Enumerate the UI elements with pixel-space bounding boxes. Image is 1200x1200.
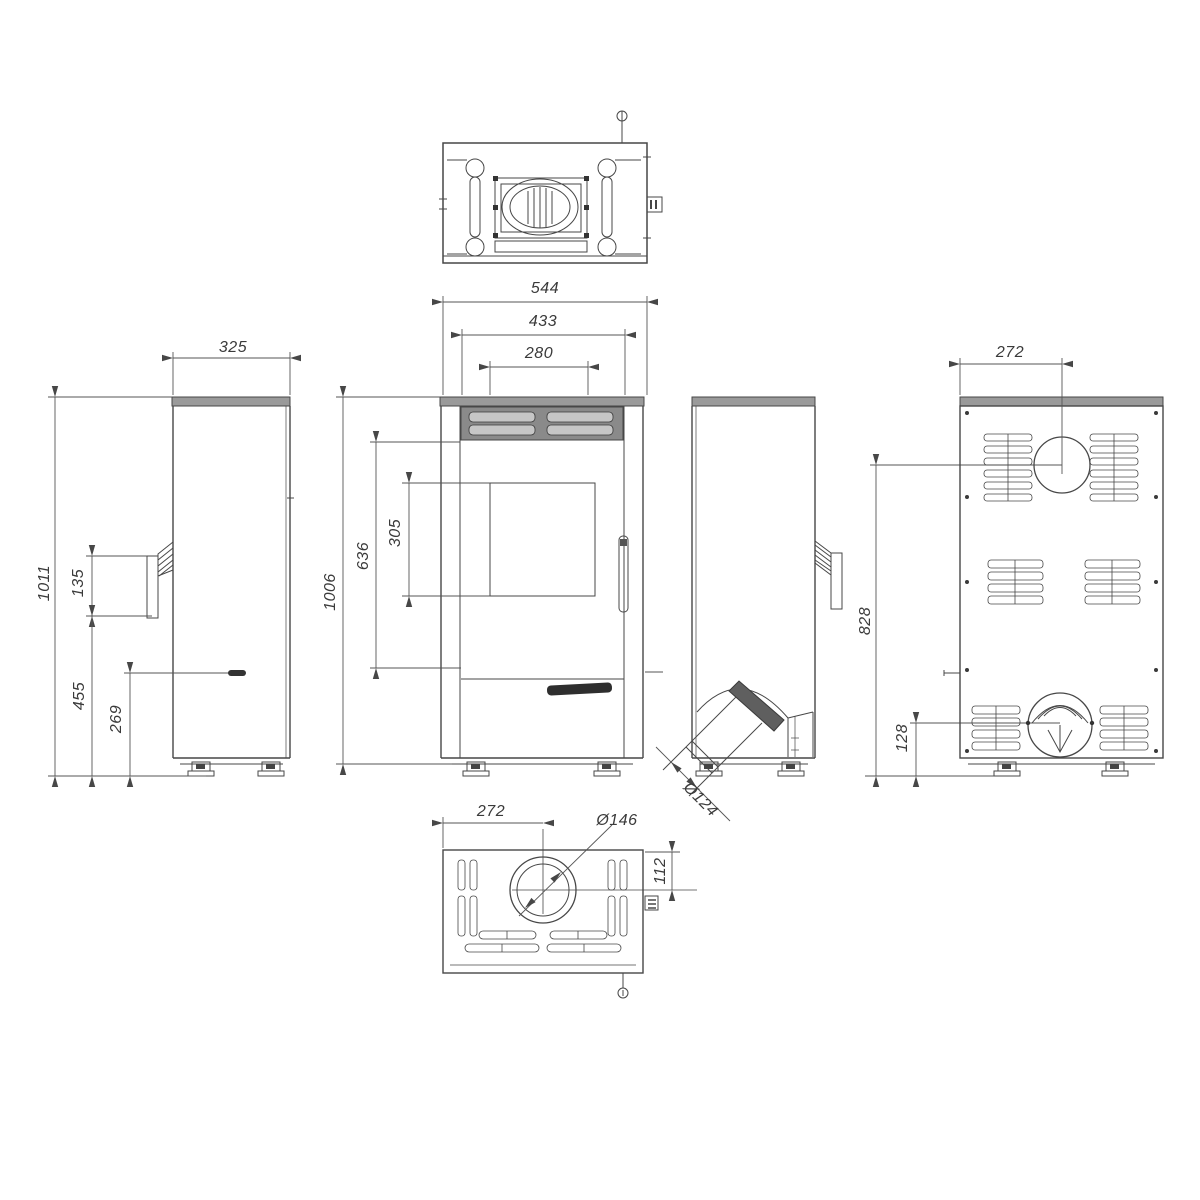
top-plate <box>440 397 644 406</box>
corner-post <box>466 238 484 256</box>
upper-vent-slots <box>984 434 1138 501</box>
dim-bottom-outlet-dia: Ø146 <box>596 812 637 830</box>
top-view-outline <box>443 143 647 263</box>
drawing-linework <box>0 0 1200 1200</box>
inlet-marker <box>228 670 246 676</box>
dim-overall-width: 544 <box>531 280 559 298</box>
side-connector <box>647 197 662 212</box>
dim-rear-flue-height: 828 <box>857 607 875 635</box>
dim-side-inlet-height: 269 <box>108 705 126 733</box>
dim-front-span: 636 <box>355 542 373 570</box>
back-view <box>944 397 1163 776</box>
panel-screws <box>965 411 1158 753</box>
corner-post <box>466 159 484 177</box>
top-plate <box>692 397 815 406</box>
middle-vent-slots <box>988 560 1140 604</box>
bottom-view <box>443 829 697 998</box>
rear-air-inlet <box>1026 693 1094 757</box>
dim-handle-height: 135 <box>70 569 88 597</box>
dim-rear-inlet-height: 128 <box>894 724 912 752</box>
side-handle <box>147 556 158 618</box>
dim-glass-width: 280 <box>525 345 553 363</box>
dim-bottom-offset: 272 <box>477 803 505 821</box>
top-view <box>439 111 662 263</box>
corner-post <box>598 159 616 177</box>
frame-screws <box>493 176 589 238</box>
corner-post <box>598 238 616 256</box>
bottom-dimensions <box>443 817 680 916</box>
dim-depth: 325 <box>219 339 247 357</box>
top-plate <box>960 397 1163 406</box>
base-vent-slots <box>458 860 627 952</box>
door-glass <box>490 483 595 596</box>
top-plate <box>172 397 290 406</box>
dim-bottom-outlet-inset: 112 <box>652 857 670 884</box>
front-dimensions <box>336 296 663 764</box>
flue-frame <box>495 178 587 238</box>
dim-body-width: 433 <box>529 313 557 331</box>
back-dimensions <box>960 358 1062 474</box>
left-side-view <box>147 397 294 776</box>
rear-flue-assembly <box>663 681 813 796</box>
stove-technical-drawing: 544 433 280 325 1011 135 455 269 1006 63… <box>0 0 1200 1200</box>
left-dimensions <box>48 352 290 776</box>
dim-body-height: 1006 <box>322 573 340 611</box>
side-handle <box>831 553 842 609</box>
dim-handle-floor-height: 455 <box>71 682 89 710</box>
dim-total-height: 1011 <box>36 565 54 601</box>
dim-rear-flue-offset: 272 <box>996 344 1024 362</box>
dim-glass-height: 305 <box>387 519 405 547</box>
brand-label <box>547 682 612 695</box>
right-side-view <box>663 397 842 796</box>
front-view <box>440 397 644 776</box>
